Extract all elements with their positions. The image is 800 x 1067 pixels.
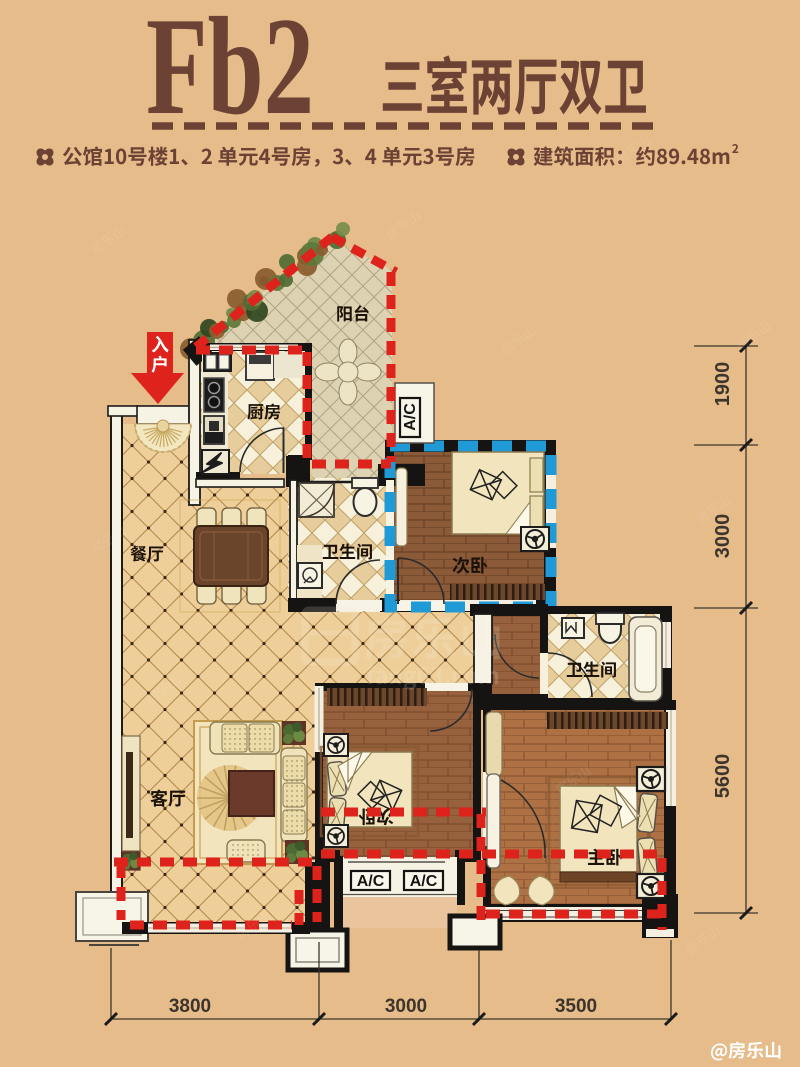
svg-text:A/C: A/C	[402, 403, 419, 431]
svg-text:3800: 3800	[169, 996, 211, 1017]
svg-text:3000: 3000	[712, 514, 734, 559]
svg-text:A/C: A/C	[357, 873, 385, 890]
svg-text:1900: 1900	[712, 362, 734, 407]
svg-text:A/C: A/C	[410, 873, 438, 890]
svg-text:3000: 3000	[385, 996, 427, 1017]
svg-text:5600: 5600	[712, 754, 734, 799]
svg-text:3500: 3500	[555, 996, 597, 1017]
